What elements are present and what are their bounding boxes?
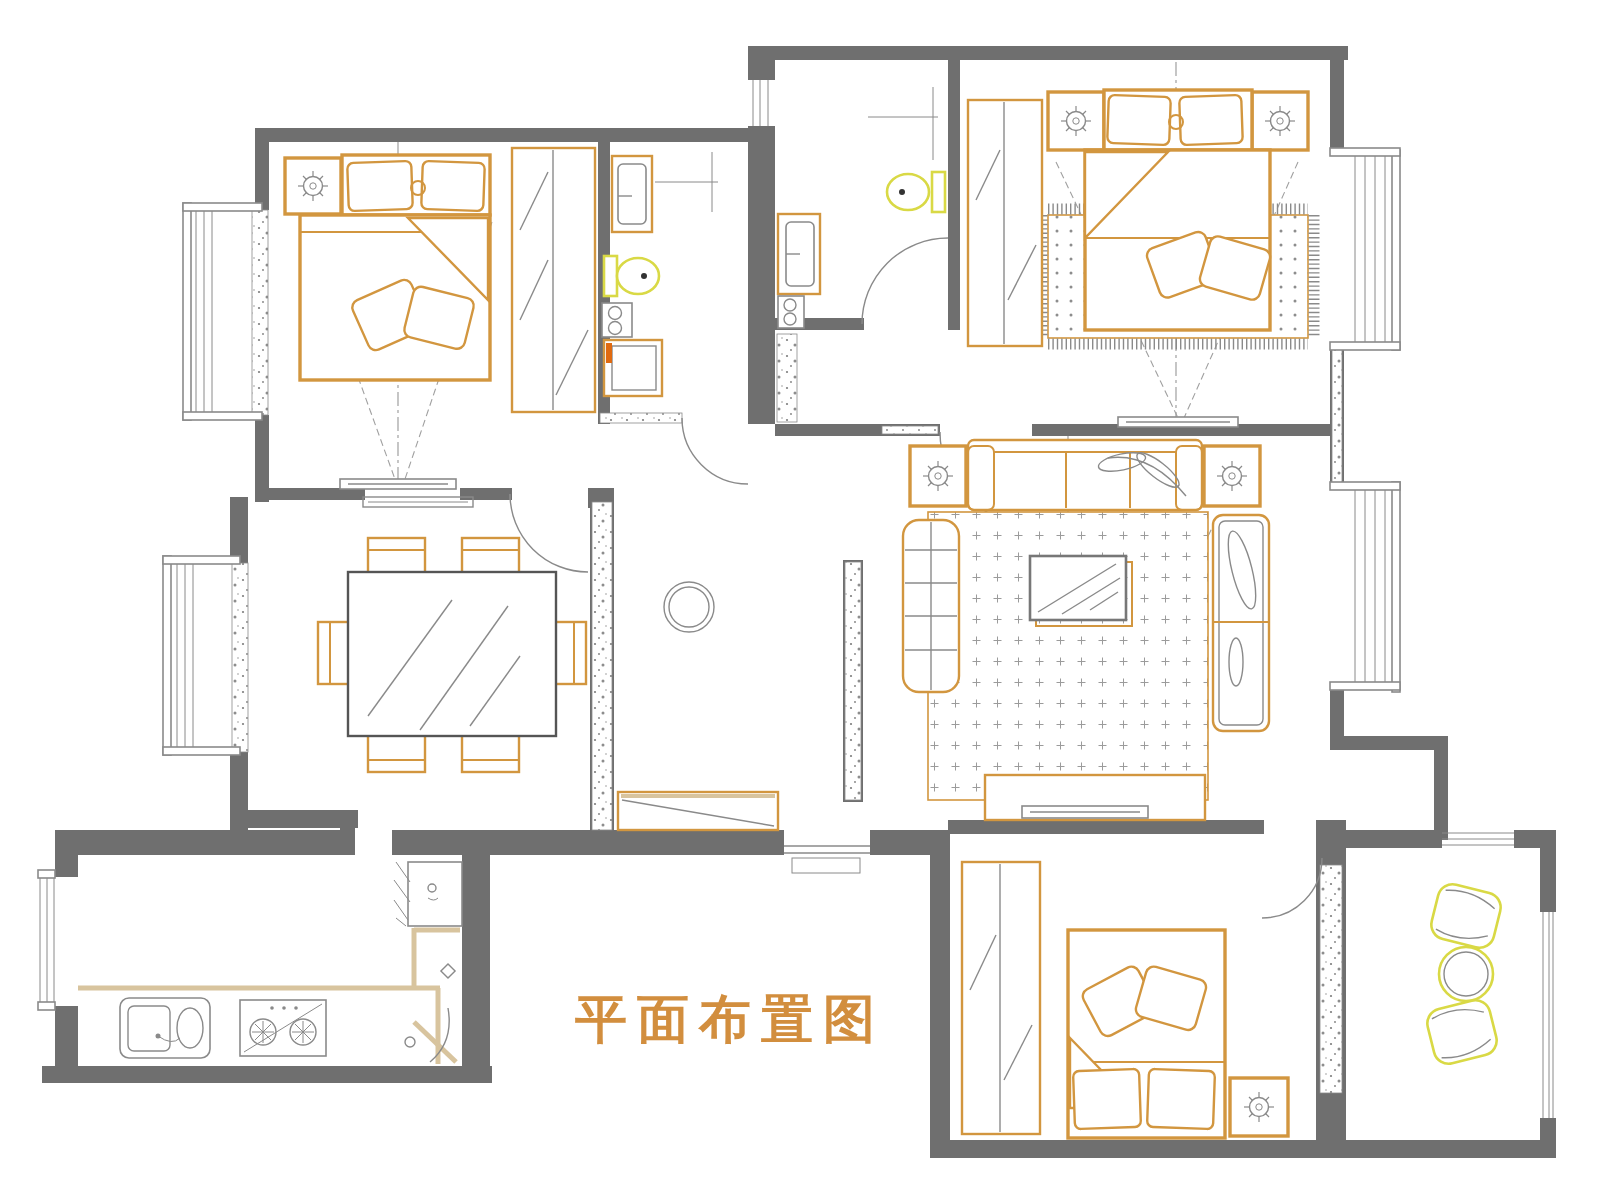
bay-window-living: [1330, 482, 1400, 692]
toilet-master-bath: [887, 172, 945, 212]
window-balcony-top: [1442, 833, 1514, 845]
window-kitchen: [38, 870, 55, 1010]
nightstand-master-right: [1252, 92, 1308, 150]
bathroom1: [602, 156, 662, 396]
washer-bathroom1: [602, 303, 632, 337]
wardrobe-bedroom1: [512, 148, 595, 412]
bay-window-dining: [163, 556, 240, 755]
bedroom1: [285, 148, 595, 489]
kitchen: [78, 862, 462, 1064]
page-title: 平面布置图: [575, 985, 885, 1055]
balcony-chair-bottom: [1424, 997, 1500, 1067]
threshold-dining: [363, 497, 473, 507]
master-bedroom: [968, 90, 1314, 427]
tv-bedroom1: [340, 479, 456, 489]
cabinet-bathroom1: [604, 340, 662, 396]
nightstand-bedroom3: [1230, 1078, 1288, 1136]
toilet-bathroom1: [604, 256, 659, 296]
hallway: [618, 582, 778, 830]
bay-window-bedroom1: [183, 203, 262, 420]
sink-master-bath: [778, 214, 820, 294]
kitchen-sink: [120, 998, 210, 1058]
nightstand-bedroom1: [285, 158, 341, 214]
balcony: [1424, 881, 1504, 1067]
floor-plan-page: 平面布置图: [0, 0, 1600, 1200]
tv-cabinet-living: [985, 775, 1205, 820]
washer-master-bath: [778, 296, 804, 328]
window-master-bath: [753, 80, 768, 126]
dining-room: [318, 538, 586, 772]
coffee-table: [1030, 556, 1132, 626]
bed-bedroom3: [1068, 930, 1225, 1138]
master-bathroom: [778, 172, 945, 328]
sofa-living: [968, 440, 1202, 510]
living-room: [903, 440, 1269, 820]
decor-circle: [664, 582, 714, 632]
bench-chaise: [903, 520, 959, 692]
bedroom3: [962, 862, 1288, 1138]
window-balcony-right: [1543, 912, 1553, 1118]
nightstand-master-left: [1048, 92, 1104, 150]
shoe-cabinet: [618, 792, 778, 830]
loveseat: [1213, 515, 1269, 731]
wardrobe-bedroom3: [962, 862, 1040, 1134]
dining-table: [348, 572, 556, 736]
bay-window-master: [1330, 148, 1400, 350]
side-table-right: [1204, 446, 1260, 506]
balcony-chair-top: [1428, 881, 1504, 951]
sink-bathroom1: [612, 156, 652, 232]
tv-master: [1118, 417, 1238, 427]
entrance-threshold: [784, 846, 870, 873]
wardrobe-master: [968, 100, 1042, 346]
kitchen-stove: [240, 1000, 326, 1056]
side-table-left: [910, 446, 966, 506]
balcony-table: [1439, 947, 1493, 1001]
refrigerator: [394, 862, 462, 926]
bed-master: [1085, 90, 1272, 330]
